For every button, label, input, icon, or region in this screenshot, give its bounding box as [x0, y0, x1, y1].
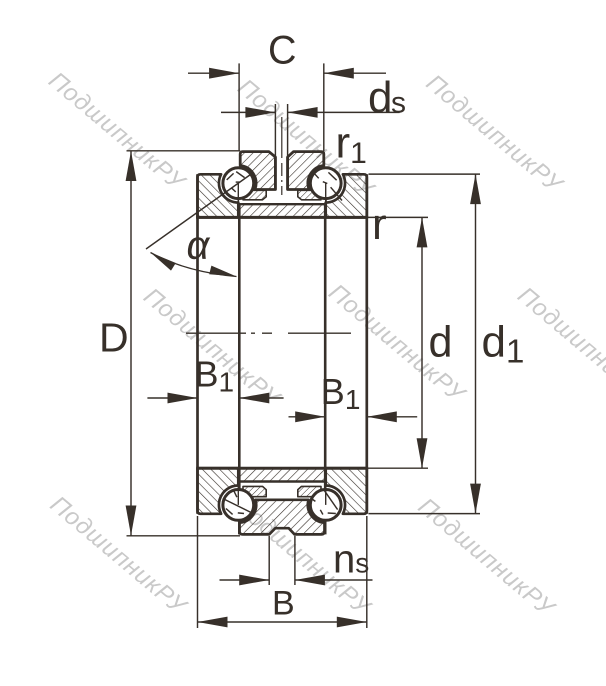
svg-text:C: C — [268, 29, 297, 73]
svg-text:s: s — [391, 87, 406, 120]
svg-text:d: d — [368, 73, 392, 122]
svg-text:D: D — [99, 315, 129, 361]
svg-text:r: r — [372, 200, 387, 249]
svg-text:d: d — [429, 318, 453, 367]
svg-text:B: B — [272, 585, 295, 623]
svg-text:α: α — [187, 224, 211, 268]
